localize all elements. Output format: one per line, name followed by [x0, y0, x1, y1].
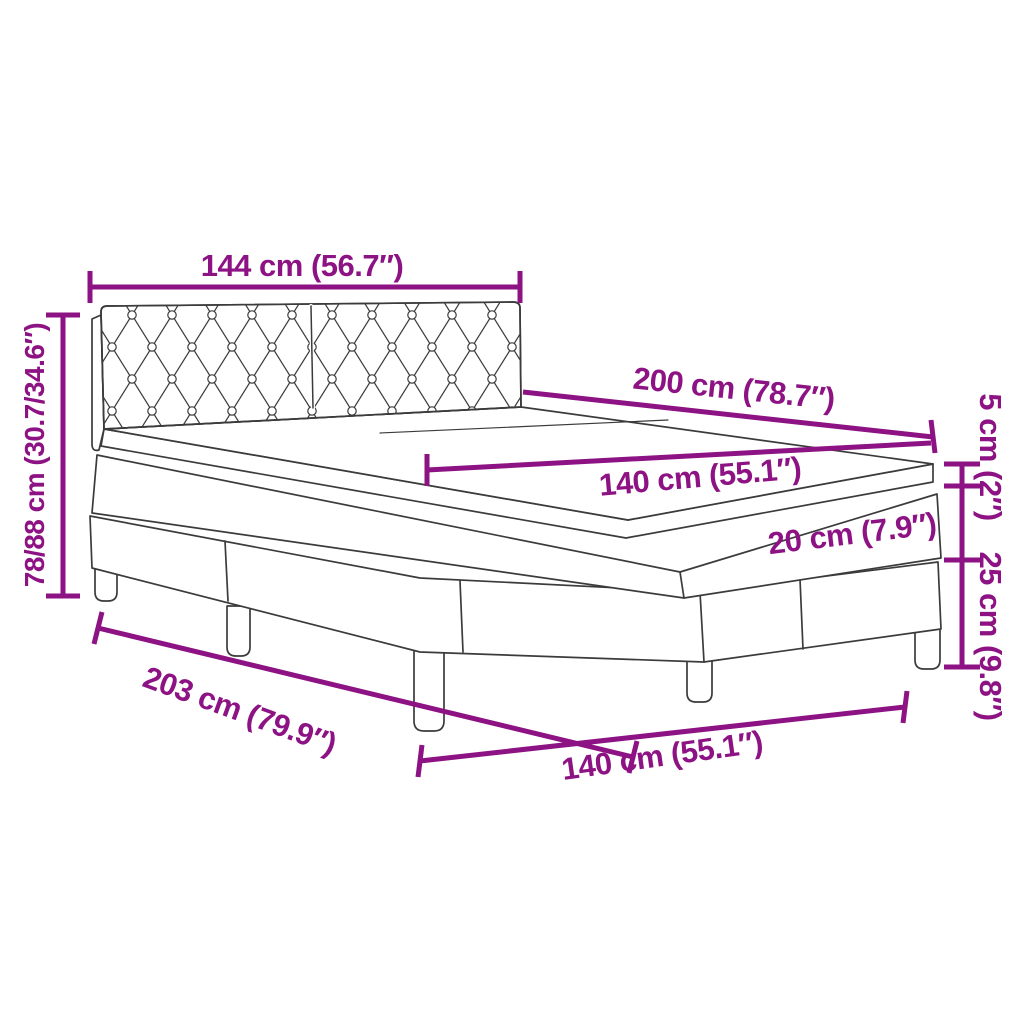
leg-front-center: [414, 650, 444, 731]
dim-headboard-height: [46, 315, 80, 596]
leg-front-mid-left: [227, 606, 250, 656]
label-total-length: 203 cm (79.9″): [139, 659, 341, 761]
diagram-canvas: 144 cm (56.7″) 78/88 cm (30.7/34.6″) 200…: [0, 0, 1024, 1024]
label-base-height: 25 cm (9.8″): [973, 551, 1008, 720]
label-headboard-width: 144 cm (56.7″): [201, 248, 404, 283]
label-topper-thickness: 5 cm (2″): [973, 393, 1008, 521]
bed-dimension-diagram: 144 cm (56.7″) 78/88 cm (30.7/34.6″) 200…: [0, 0, 1024, 1024]
bed-drawing: [90, 302, 941, 731]
label-headboard-height: 78/88 cm (30.7/34.6″): [19, 323, 50, 587]
